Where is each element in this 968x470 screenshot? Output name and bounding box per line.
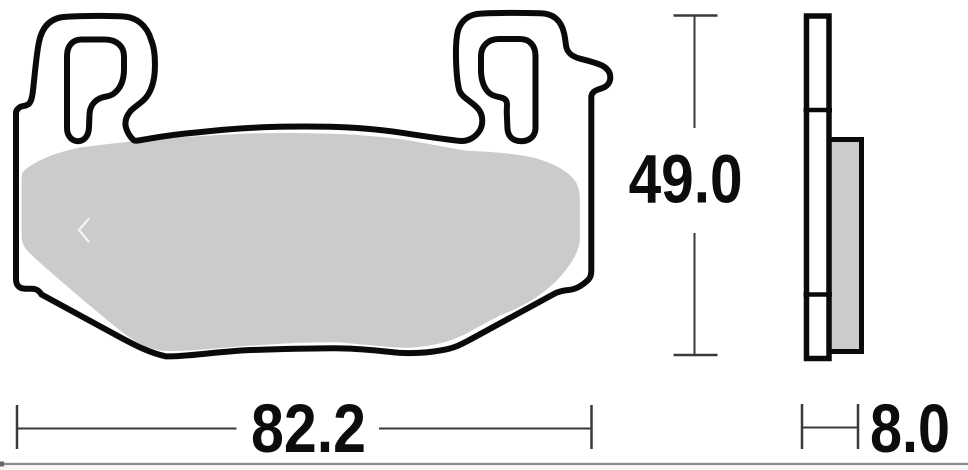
svg-text:82.2: 82.2 [251, 390, 366, 467]
svg-text:49.0: 49.0 [629, 141, 743, 218]
svg-text:8.0: 8.0 [870, 390, 950, 467]
